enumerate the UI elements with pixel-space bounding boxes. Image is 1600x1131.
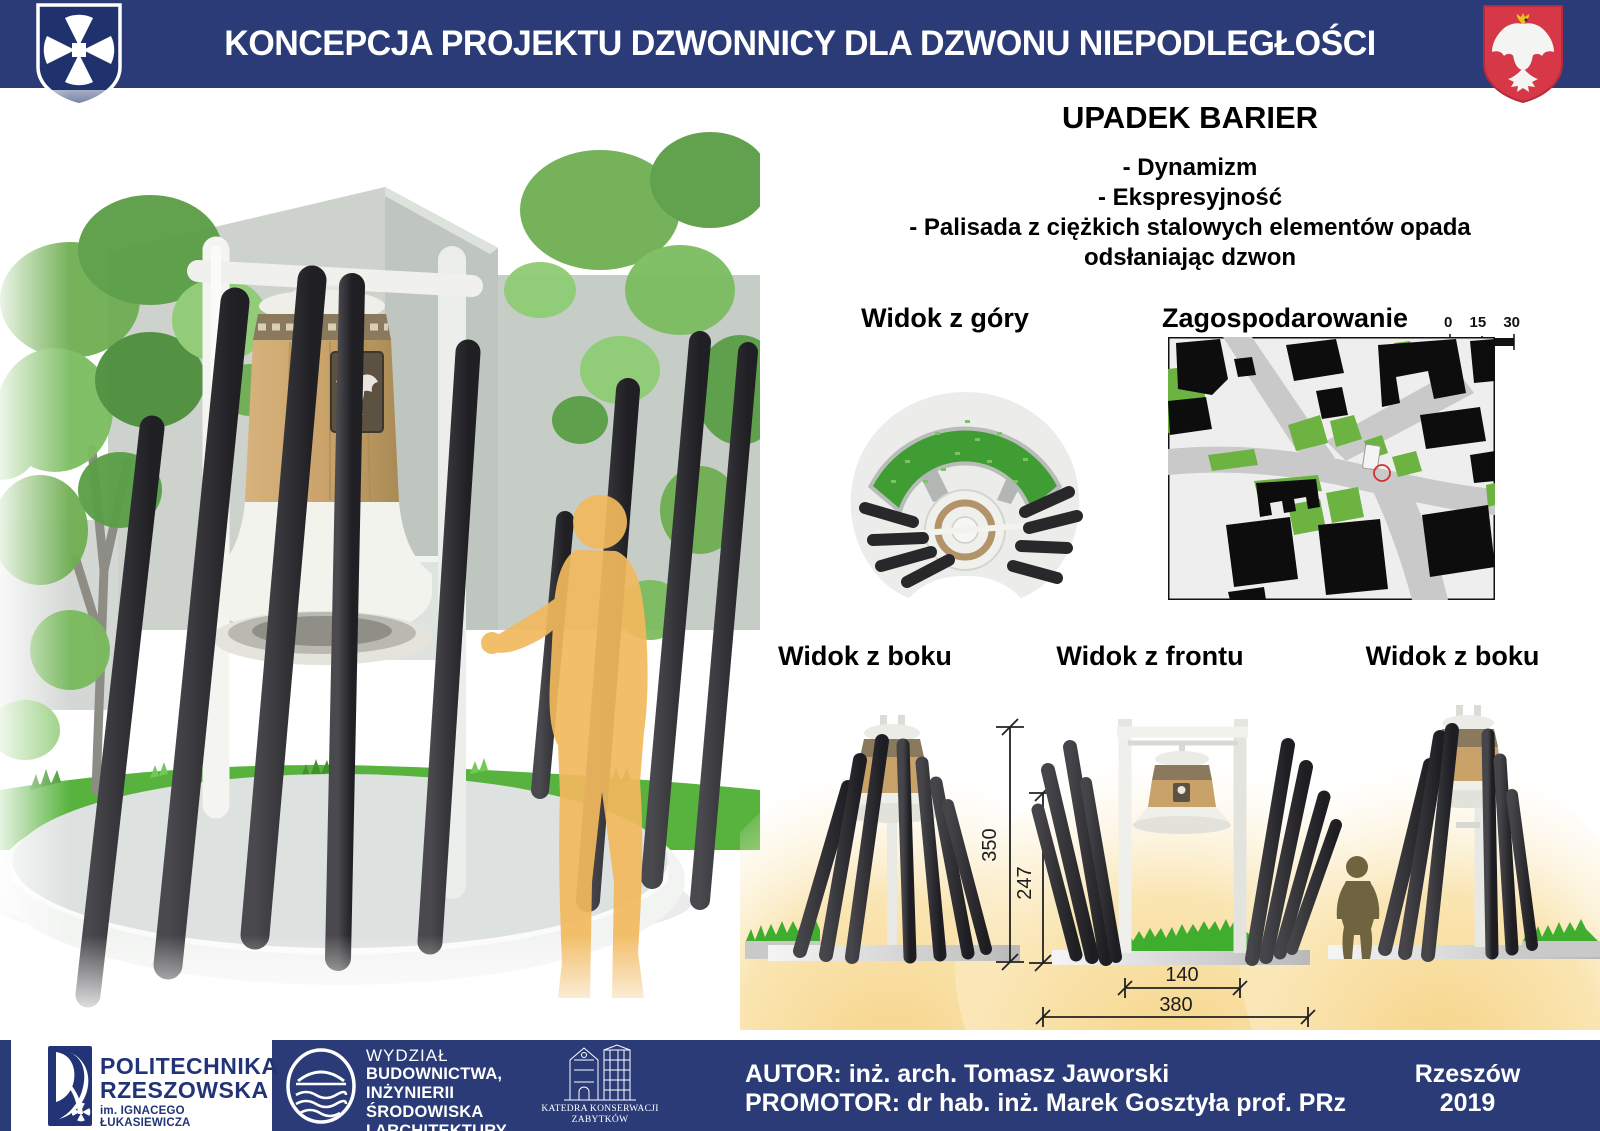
scale-tick-15: 15 [1469, 314, 1486, 331]
site-plan-map [1168, 337, 1495, 600]
dimension-label-380: 380 [1159, 994, 1192, 1016]
year-label: 2019 [1395, 1089, 1540, 1118]
bullet-dynamizm: - Dynamizm [850, 153, 1530, 183]
credits-block: AUTOR: inż. arch. Tomasz Jaworski PROMOT… [745, 1060, 1445, 1118]
poster-title: KONCEPCJA PROJEKTU DZWONNICY DLA DZWONU … [24, 0, 1576, 88]
bullet-palisada: - Palisada z ciężkich stalowych elementó… [850, 213, 1530, 273]
department-logo-icon [562, 1044, 638, 1102]
faculty-line2: BUDOWNICTWA, [366, 1065, 576, 1084]
poster-board: KONCEPCJA PROJEKTU DZWONNICY DLA DZWONU … [0, 0, 1600, 1131]
faculty-logo-icon [284, 1047, 358, 1125]
department-name: KATEDRA KONSERWACJI ZABYTKÓW [540, 1104, 660, 1126]
top-view-label: Widok z góry [830, 303, 1060, 334]
faculty-line1: WYDZIAŁ [366, 1046, 576, 1065]
department-line1: KATEDRA KONSERWACJI [540, 1104, 660, 1115]
bullet-ekspresyjnosc: - Ekspresyjność [850, 183, 1530, 213]
main-perspective-render [0, 90, 760, 1015]
concept-bullets: - Dynamizm - Ekspresyjność - Palisada z … [850, 153, 1530, 273]
dimension-label-247: 247 [1014, 866, 1036, 899]
concept-title: UPADEK BARIER [890, 100, 1490, 136]
site-plan-label: Zagospodarowanie [1160, 303, 1410, 334]
politechnika-rzeszowska-logo-icon [48, 1046, 92, 1126]
dimension-label-350: 350 [979, 828, 1001, 861]
scale-bar-ticks: 0 15 30 [1444, 314, 1520, 331]
place-year-block: Rzeszów 2019 [1395, 1060, 1540, 1118]
side-view-left-label: Widok z boku [740, 641, 990, 672]
scale-tick-30: 30 [1503, 314, 1520, 331]
university-name: POLITECHNIKA RZESZOWSKA im. IGNACEGO ŁUK… [100, 1054, 275, 1129]
city-label: Rzeszów [1395, 1060, 1540, 1089]
author-line: AUTOR: inż. arch. Tomasz Jaworski [745, 1060, 1445, 1089]
university-line2: RZESZOWSKA [100, 1078, 275, 1102]
scale-tick-0: 0 [1444, 314, 1452, 331]
top-view-render [815, 340, 1115, 640]
university-line3: im. IGNACEGO ŁUKASIEWICZA [100, 1105, 275, 1129]
side-view-right-label: Widok z boku [1330, 641, 1575, 672]
promoter-line: PROMOTOR: dr hab. inż. Marek Gosztyła pr… [745, 1089, 1445, 1118]
front-view-label: Widok z frontu [1030, 641, 1270, 672]
poland-eagle-icon [1482, 4, 1564, 104]
department-line2: ZABYTKÓW [540, 1115, 660, 1126]
university-line1: POLITECHNIKA [100, 1054, 275, 1078]
elevation-drawings: 350 247 [740, 675, 1600, 1030]
dimension-label-140: 140 [1165, 964, 1198, 986]
